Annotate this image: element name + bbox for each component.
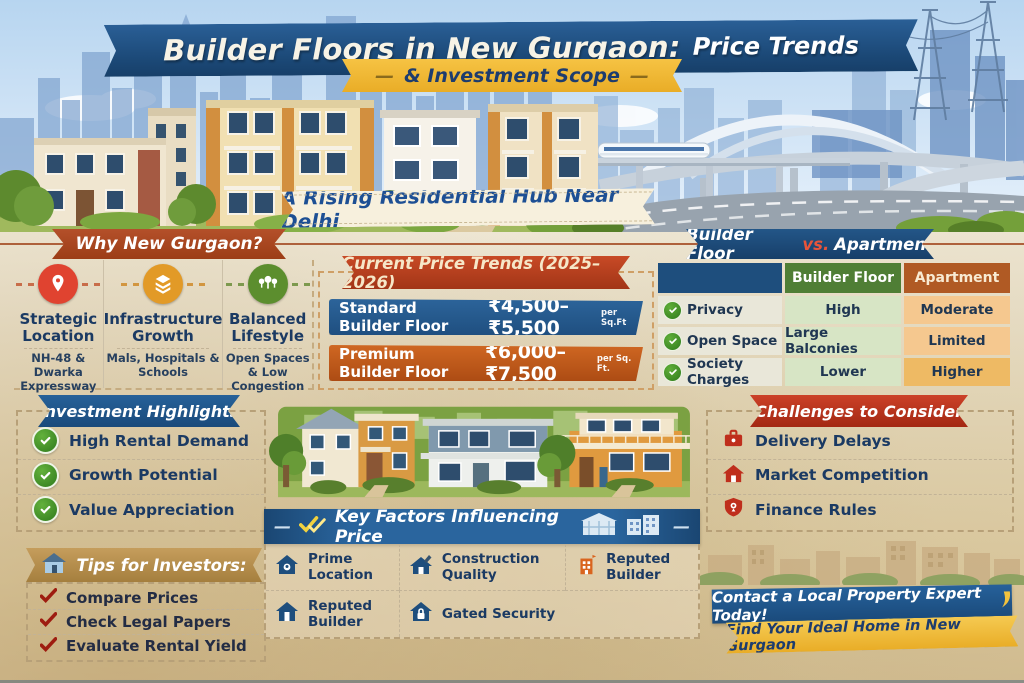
layers-icon (143, 264, 183, 304)
dash-decoration: — (673, 517, 690, 537)
house-1 (296, 409, 419, 487)
houses-illustration (268, 400, 700, 514)
house-lock-icon (408, 599, 434, 629)
vs-heading-vs: vs. (802, 235, 829, 254)
flyover (600, 120, 1024, 232)
table-row-feature: Society Charges (658, 358, 782, 386)
table-cell: Moderate (904, 296, 1010, 324)
why-item-subtitle: Mals, Hospitals & Schools (104, 352, 223, 380)
premium-price-bar: Premium Builder Floor ₹6,000–₹7,500 per … (329, 345, 643, 381)
key-factor-empty-cell (565, 590, 698, 637)
house-icon (41, 552, 67, 578)
dash-decoration: — (274, 517, 291, 537)
why-item-subtitle: Open Spaces & Low Congestion (223, 352, 312, 393)
table-cell: Limited (904, 327, 1010, 355)
price-label: Premium Builder Floor (339, 345, 475, 381)
list-item: Evaluate Rental Yield (28, 634, 264, 658)
comparison-table: Builder Floor Apartment Privacy High Mod… (658, 263, 1010, 386)
dash-decoration (187, 283, 205, 286)
dash-decoration (292, 283, 310, 286)
red-check-icon (40, 588, 57, 607)
why-item-infrastructure-growth: Infrastructure Growth Mals, Hospitals & … (103, 260, 223, 388)
table-cell: Higher (904, 358, 1010, 386)
price-trends-section: Current Price Trends (2025–2026) Standar… (318, 271, 654, 390)
list-item: High Rental Demand (18, 426, 264, 456)
list-item: Compare Prices (28, 586, 264, 609)
dash-decoration (121, 283, 139, 286)
dashed-separator (233, 348, 302, 349)
trees-icon (248, 264, 288, 304)
key-factors-heading-text: Key Factors Influencing Price (335, 507, 563, 547)
infographic-poster: Builder Floors in New Gurgaon: Price Tre… (0, 0, 1024, 683)
challenges-heading: Challenges to Consider (750, 395, 968, 427)
builder-floor-vs-apartment-heading: Builder Floor vs. Apartment (686, 229, 934, 259)
price-range: ₹4,500–₹5,500 (488, 295, 598, 339)
check-icon (663, 332, 682, 351)
page-title-accent: Price Trends (693, 32, 859, 61)
price-unit: per Sq. Ft. (597, 354, 633, 381)
why-item-balanced-lifestyle: Balanced Lifestyle Open Spaces & Low Con… (222, 260, 312, 388)
dash-decoration: — (630, 65, 649, 87)
key-factor-item: Reputed Builder (266, 590, 399, 637)
tips-heading: Tips for Investors: (26, 548, 262, 582)
tagline-text: A Rising Residential Hub Near Delhi (281, 182, 655, 233)
building-flag-icon (574, 553, 598, 581)
why-item-title: Balanced Lifestyle (223, 311, 312, 344)
key-factor-item: Prime Location (266, 544, 399, 590)
table-header-builder-floor: Builder Floor (785, 263, 901, 293)
investment-highlights-section: Investment Highlights High Rental Demand… (16, 410, 266, 532)
red-check-icon (40, 612, 57, 631)
check-icon (32, 496, 59, 523)
subtitle-banner: — & Investment Scope — (342, 59, 682, 92)
dashed-separator (117, 348, 210, 349)
faded-skyline-illustration (700, 533, 1024, 585)
buildings-icon (579, 511, 665, 542)
metro-train (598, 143, 710, 158)
price-trends-heading-text: Current Price Trends (2025–2026) (342, 254, 630, 292)
table-cell: Large Balconies (785, 327, 901, 355)
check-icon (32, 427, 59, 454)
table-header-apartment: Apartment (904, 263, 1010, 293)
vs-heading-right: Apartment (834, 235, 934, 254)
list-item: Growth Potential (18, 459, 264, 490)
list-item: Finance Rules (708, 494, 1012, 525)
tagline-ribbon: A Rising Residential Hub Near Delhi (281, 188, 655, 227)
house-2 (421, 419, 556, 487)
price-range: ₹6,000–₹7,500 (485, 341, 594, 385)
check-icon (663, 301, 682, 320)
table-row-feature: Open Space (658, 327, 782, 355)
tips-heading-text: Tips for Investors: (76, 556, 246, 575)
house-3 (561, 413, 690, 487)
check-icon (32, 462, 59, 489)
key-factor-item: Construction Quality (399, 544, 565, 590)
house-location-icon (274, 552, 300, 582)
list-item: Check Legal Papers (28, 609, 264, 633)
why-item-title: Infrastructure Growth (104, 311, 223, 344)
why-item-strategic-location: Strategic Location NH-48 & Dwarka Expres… (14, 260, 103, 388)
dashed-separator (24, 348, 93, 349)
list-item: Value Appreciation (18, 494, 264, 525)
green-city-silhouette (304, 411, 678, 439)
table-row-feature: Privacy (658, 296, 782, 324)
page-subtitle: & Investment Scope (404, 65, 620, 87)
price-trends-heading: Current Price Trends (2025–2026) (342, 256, 630, 289)
why-new-gurgaon-section: Strategic Location NH-48 & Dwarka Expres… (14, 260, 314, 390)
list-item: Market Competition (708, 459, 1012, 490)
red-check-icon (40, 637, 57, 656)
price-unit: per Sq.Ft (601, 308, 633, 335)
dash-decoration: — (375, 65, 394, 87)
dash-decoration (226, 283, 244, 286)
challenges-section: Challenges to Consider Delivery Delays M… (706, 410, 1014, 532)
why-item-title: Strategic Location (14, 311, 103, 344)
shield-pin-icon (722, 496, 745, 523)
key-factors-heading: — Key Factors Influencing Price — (264, 509, 700, 544)
house-construction-icon (408, 552, 434, 582)
quote-mark-icon (1001, 590, 1012, 612)
investment-highlights-heading: Investment Highlights (38, 395, 240, 427)
house-icon (722, 462, 745, 489)
why-heading-text: Why New Gurgaon? (76, 234, 263, 254)
key-factor-item: Gated Security (399, 590, 565, 637)
table-header-empty (658, 263, 782, 293)
double-check-icon (299, 513, 327, 540)
dash-decoration (82, 283, 100, 286)
price-label: Standard Builder Floor (339, 299, 478, 335)
briefcase-icon (722, 427, 745, 454)
dash-decoration (16, 283, 34, 286)
key-factor-item: Reputed Builder (565, 544, 698, 590)
table-cell: Lower (785, 358, 901, 386)
location-pin-icon (38, 264, 78, 304)
why-new-gurgaon-heading: Why New Gurgaon? (52, 229, 286, 259)
tips-section: Compare Prices Check Legal Papers Evalua… (26, 582, 266, 662)
standard-price-bar: Standard Builder Floor ₹4,500–₹5,500 per… (329, 299, 643, 335)
house-icon (274, 599, 300, 629)
key-factors-section: — Key Factors Influencing Price — Prime … (264, 509, 700, 639)
why-item-subtitle: NH-48 & Dwarka Expressway (14, 352, 103, 393)
table-cell: High (785, 296, 901, 324)
vs-heading-left: Builder Floor (686, 225, 797, 263)
check-icon (663, 363, 682, 382)
list-item: Delivery Delays (708, 426, 1012, 456)
trees (269, 434, 654, 494)
